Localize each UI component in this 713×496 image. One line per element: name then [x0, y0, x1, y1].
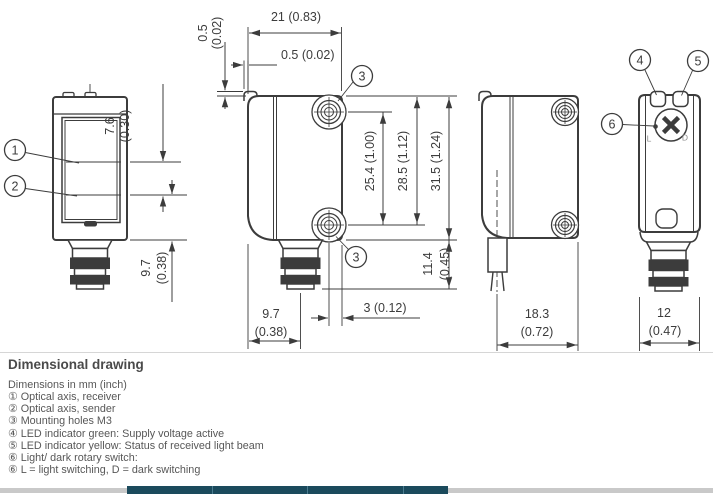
dim-lens-offset-top-mm: 0.5: [196, 24, 210, 41]
side-view-cable: 18.3 (0.72): [479, 92, 579, 352]
footer-bar-separator: [212, 486, 214, 494]
callout-4: 4: [637, 54, 644, 68]
cable-sheath: [488, 238, 507, 272]
legend-num: ⑤: [8, 440, 18, 452]
dim-connector-length-inch: (0.45): [438, 248, 452, 281]
dim-housing-width: 21 (0.83): [271, 10, 321, 24]
legend-num: ⑥: [8, 452, 18, 464]
legend-text: Optical axis, sender: [21, 403, 116, 415]
dim-top-to-bottom-hole: 28.5 (1.12): [396, 131, 410, 191]
legend-num: ②: [8, 403, 18, 415]
legend-text: Optical axis, receiver: [21, 391, 121, 403]
legend-item-7: ⑥L = light switching, D = dark switching: [8, 464, 264, 476]
dim-axis-spacing-inch: (0.30): [118, 110, 132, 143]
callout-2: 2: [12, 180, 19, 194]
section-divider: [0, 352, 713, 353]
dim-connector-length-mm: 11.4: [421, 252, 435, 275]
switch-label-light: L: [647, 134, 652, 144]
dim-housing-height: 31.5 (1.24): [429, 131, 443, 191]
units-note: Dimensions in mm (inch): [8, 379, 264, 391]
legend-text: LED indicator green: Supply voltage acti…: [21, 428, 224, 440]
front-view: 7.6 (0.30) 9.7 (0.38) 1 2: [5, 84, 188, 302]
dim-axis-bottom-mm: 9.7: [139, 259, 153, 276]
legend-item-4: ④LED indicator green: Supply voltage act…: [8, 428, 264, 440]
footer-bar-separator: [403, 486, 405, 494]
callout-3-top: 3: [359, 70, 366, 84]
callout-5: 5: [695, 55, 702, 69]
dim-front-to-connector-mm: 9.7: [262, 307, 279, 321]
dim-lens-offset-top-inch: (0.02): [210, 17, 224, 50]
footer-bar-accent: [127, 486, 448, 494]
connector-cavity: [656, 209, 677, 228]
legend-text: Light/ dark rotary switch:: [21, 452, 138, 464]
dim-thickness-mm: 12: [657, 306, 671, 320]
side-view-connector: 21 (0.83) 0.5 (0.02) 0.5 (0.02) 25.4 (1.…: [196, 10, 457, 349]
legend-num: ⑥: [8, 464, 18, 476]
legend-text: LED indicator yellow: Status of received…: [21, 440, 264, 452]
legend-block: Dimensional drawing Dimensions in mm (in…: [8, 357, 264, 476]
led-yellow-icon: [673, 92, 688, 107]
led-green-icon: [651, 92, 666, 107]
dim-lens-offset-front: 0.5 (0.02): [281, 48, 335, 62]
dim-axis-bottom-inch: (0.38): [155, 252, 169, 285]
dim-thickness-inch: (0.47): [649, 324, 682, 338]
legend-item-3: ③Mounting holes M3: [8, 415, 264, 427]
dim-axis-spacing-mm: 7.6: [103, 117, 117, 134]
legend-text: Mounting holes M3: [21, 415, 112, 427]
callout-3-bottom: 3: [353, 251, 360, 265]
footer-bar-separator: [307, 486, 309, 494]
dimensional-drawing: 7.6 (0.30) 9.7 (0.38) 1 2 21 (0.83): [0, 0, 713, 352]
cable-wires: [491, 272, 504, 291]
dim-cable-depth-mm: 18.3: [525, 307, 549, 321]
callout-1: 1: [12, 144, 19, 158]
dim-hole-spacing: 25.4 (1.00): [363, 131, 377, 191]
dim-front-to-connector-inch: (0.38): [255, 325, 288, 339]
legend-item-6: ⑥Light/ dark rotary switch:: [8, 452, 264, 464]
section-title: Dimensional drawing: [8, 357, 264, 372]
legend-num: ①: [8, 391, 18, 403]
legend-item-1: ①Optical axis, receiver: [8, 391, 264, 403]
legend-item-5: ⑤LED indicator yellow: Status of receive…: [8, 440, 264, 452]
datasheet-page: 7.6 (0.30) 9.7 (0.38) 1 2 21 (0.83): [0, 0, 713, 496]
dim-cable-depth-inch: (0.72): [521, 325, 554, 339]
switch-label-dark: D: [682, 133, 688, 143]
legend-num: ③: [8, 415, 18, 427]
callout-6: 6: [609, 118, 616, 132]
switch-pointer-dot: [653, 124, 658, 129]
lens-notch: [84, 221, 97, 227]
legend-item-2: ②Optical axis, sender: [8, 403, 264, 415]
legend-text: L = light switching, D = dark switching: [21, 464, 201, 476]
dim-hole-to-rear: 3 (0.12): [363, 301, 406, 315]
legend-num: ④: [8, 428, 18, 440]
rear-view: L D 12 (0.47) 4 5 6: [602, 50, 709, 352]
